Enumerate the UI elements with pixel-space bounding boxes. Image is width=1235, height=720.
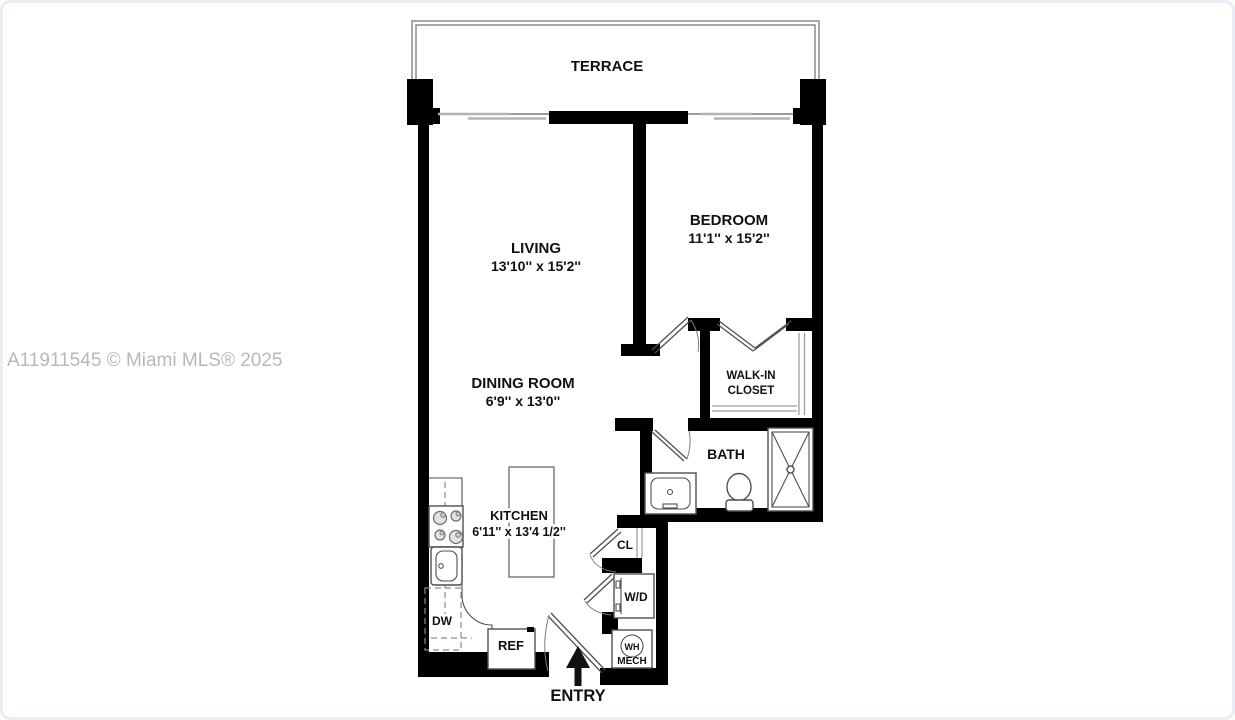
entry-arrow — [566, 646, 590, 686]
bedroom-dims: 11'1'' x 15'2'' — [688, 230, 769, 246]
closet-bifold-panel — [719, 321, 755, 348]
wall-segment — [549, 111, 688, 124]
wall-segment — [621, 344, 660, 356]
closet-bifold-panel — [755, 321, 791, 348]
kitchen-label: KITCHEN — [490, 508, 548, 523]
mech-label: MECH — [617, 656, 646, 667]
bath-label: BATH — [707, 446, 745, 462]
bath-fixtures — [645, 428, 813, 514]
floorplan-image: TERRACE LIVING 13'10'' x 15'2'' BEDROOM … — [0, 0, 1235, 720]
stove-burner-center — [440, 531, 444, 535]
wall-segment — [600, 668, 668, 685]
bath-door-leaf — [652, 432, 684, 461]
wall-segment — [656, 515, 668, 685]
terrace-label: TERRACE — [571, 58, 644, 75]
cl-door-leaf — [590, 529, 618, 554]
wd-door-leaf — [587, 577, 615, 603]
stove-burner-center — [456, 512, 460, 516]
toilet-tank — [726, 500, 753, 511]
water-heater-label: WH — [625, 642, 640, 652]
dishwasher-label: DW — [432, 614, 453, 628]
wall-segment — [700, 325, 710, 420]
cl-label: CL — [617, 538, 633, 552]
closet-bifold-panel — [753, 324, 789, 351]
refrigerator-label: REF — [498, 638, 524, 653]
toilet-bowl — [727, 474, 751, 501]
refrigerator-handle — [527, 627, 534, 632]
dining-room-label: DINING ROOM — [471, 375, 574, 392]
entry-label: ENTRY — [550, 687, 605, 705]
kitchen-dims: 6'11'' x 13'4 1/2'' — [472, 525, 566, 539]
room-labels: TERRACE LIVING 13'10'' x 15'2'' BEDROOM … — [432, 58, 776, 705]
shower-drain — [787, 466, 794, 473]
living-dims: 13'10'' x 15'2'' — [491, 258, 581, 274]
wall-segment — [418, 113, 429, 677]
bedroom-door-leaf — [655, 320, 691, 353]
stove-burner-center — [441, 513, 446, 518]
bedroom-door-leaf — [652, 317, 688, 350]
wall-segment — [793, 108, 807, 124]
watermark: A11911545 © Miami MLS® 2025 — [7, 350, 283, 371]
closet-bifold-panel — [717, 324, 753, 351]
bath-door-leaf — [655, 430, 687, 459]
living-label: LIVING — [511, 240, 561, 257]
wd-door-leaf — [584, 574, 612, 600]
walkin-closet-label-line2: CLOSET — [728, 385, 775, 397]
wall-segment — [633, 124, 646, 346]
washer-dryer-label: W/D — [624, 590, 648, 604]
walkin-closet-label-line1: WALK-IN — [726, 370, 775, 382]
stove-burner — [450, 531, 463, 544]
wall-segment — [786, 318, 823, 331]
floorplan-svg: TERRACE LIVING 13'10'' x 15'2'' BEDROOM … — [0, 0, 1235, 720]
bedroom-label: BEDROOM — [690, 212, 768, 229]
stove-burner-center — [456, 533, 461, 538]
dining-room-dims: 6'9'' x 13'0'' — [486, 393, 560, 409]
bath-door-arc — [687, 431, 690, 459]
